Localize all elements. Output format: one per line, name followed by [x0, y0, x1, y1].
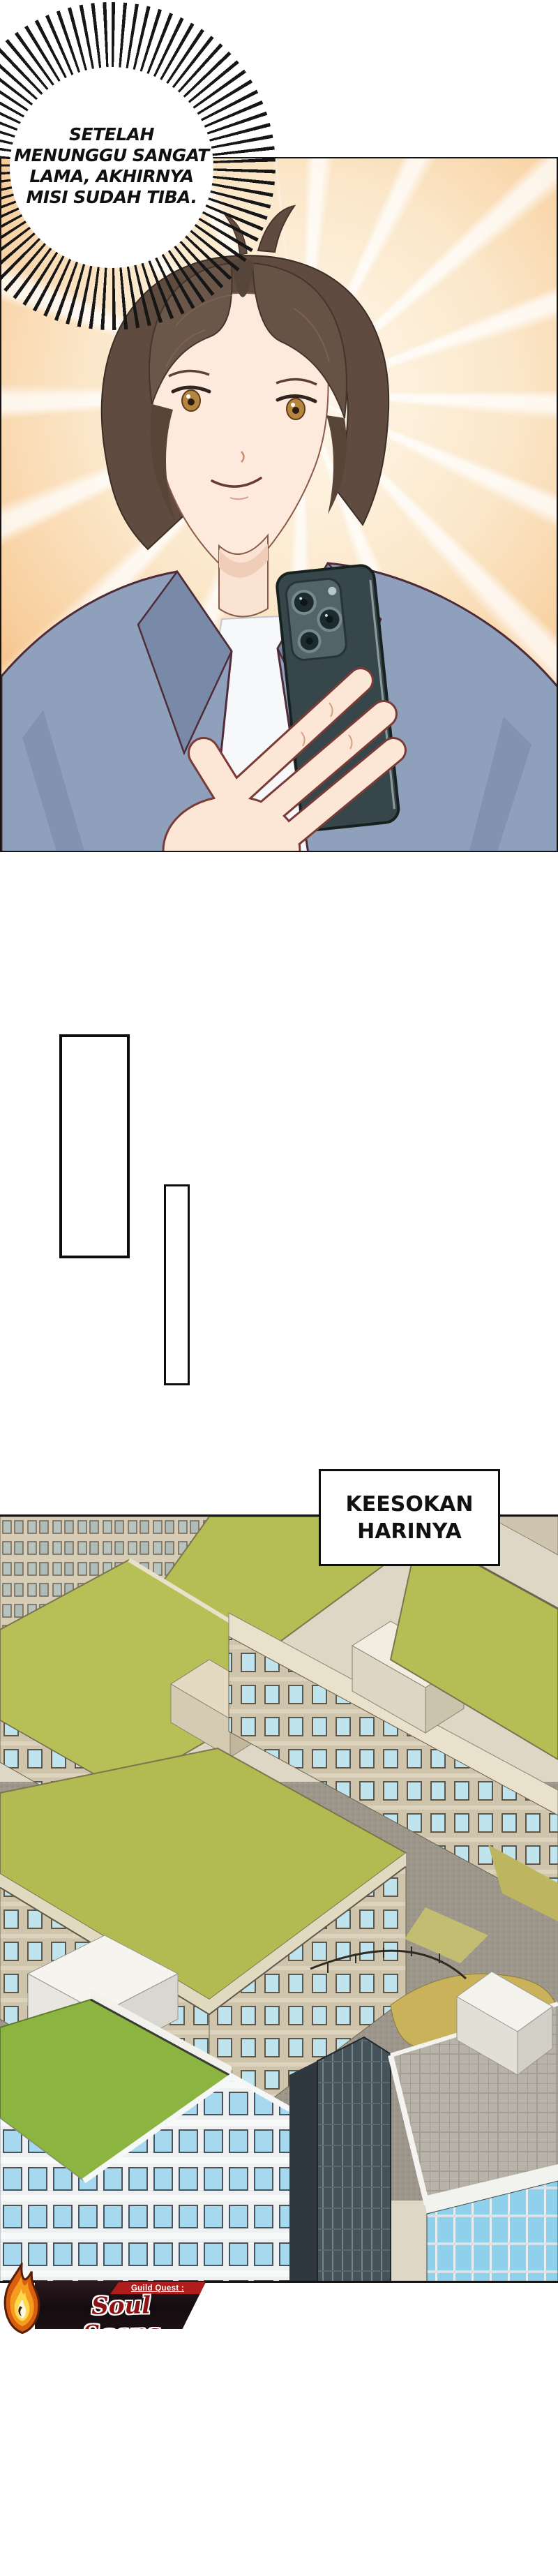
flame-logo-icon: [0, 2263, 43, 2335]
empty-panel-large: [59, 1034, 130, 1258]
speech-bubble: SETELAH MENUNGGU SANGAT LAMA, AKHIRNYA M…: [0, 2, 276, 330]
panel-building-aerial: [0, 1514, 558, 2283]
speech-line: MISI SUDAH TIBA.: [27, 187, 197, 208]
comic-page: SETELAH MENUNGGU SANGAT LAMA, AKHIRNYA M…: [0, 0, 558, 2576]
empty-panel-narrow: [164, 1184, 190, 1385]
caption-box: KEESOKAN HARINYA: [319, 1469, 500, 1566]
speech-bubble-text: SETELAH MENUNGGU SANGAT LAMA, AKHIRNYA M…: [0, 2, 276, 330]
speech-line: SETELAH: [69, 124, 154, 145]
caption-line: HARINYA: [357, 1518, 462, 1545]
scanlation-banner: Guild Quest : Soul Scans: [35, 2281, 206, 2329]
speech-line: MENUNGGU SANGAT: [14, 145, 209, 166]
buildings-illustration: [0, 1517, 558, 2283]
speech-line: LAMA, AKHIRNYA: [29, 166, 193, 187]
caption-line: KEESOKAN: [346, 1491, 474, 1518]
scanlation-group-name: Soul Scans: [51, 2291, 191, 2348]
